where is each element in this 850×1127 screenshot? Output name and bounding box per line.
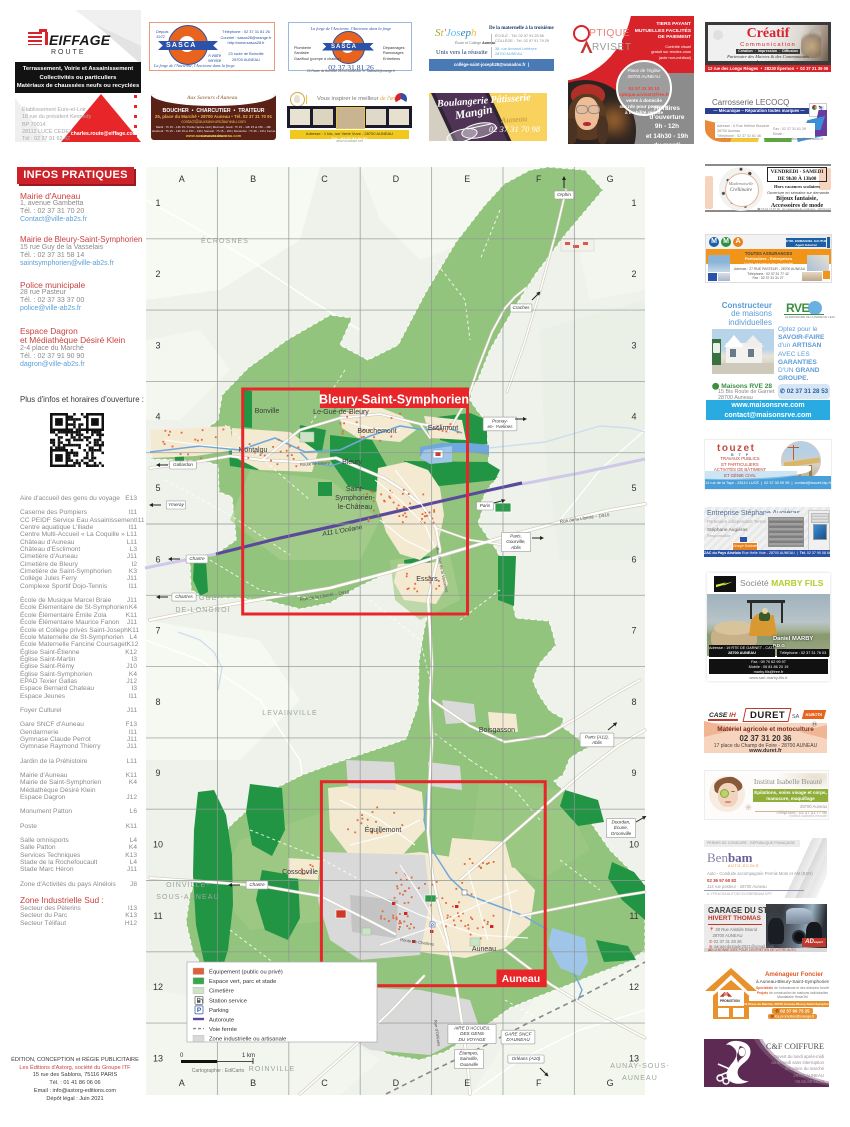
svg-text:G: G — [607, 174, 614, 184]
svg-text:Essars: Essars — [416, 576, 438, 583]
svg-text:Bleury: Bleury — [342, 459, 362, 466]
svg-text:5: 5 — [631, 483, 636, 493]
svg-text:7: 7 — [155, 626, 160, 636]
svg-text:P: P — [197, 1007, 202, 1014]
svg-text:1: 1 — [155, 198, 160, 208]
svg-text:2: 2 — [155, 269, 160, 279]
svg-text:10: 10 — [629, 840, 639, 850]
svg-text:11: 11 — [629, 911, 638, 921]
svg-text:D'AUNEAU: D'AUNEAU — [506, 1037, 530, 1042]
svg-text:8: 8 — [155, 697, 160, 707]
svg-text:Chartre: Chartre — [189, 556, 205, 561]
svg-text:DES GENS: DES GENS — [460, 1031, 485, 1036]
svg-text:4: 4 — [155, 412, 160, 422]
svg-text:12: 12 — [153, 982, 163, 992]
svg-text:Bouchemont: Bouchemont — [357, 428, 396, 435]
svg-text:Ouarville: Ouarville — [460, 1062, 479, 1067]
svg-text:ROINVILLE: ROINVILLE — [249, 1066, 295, 1073]
svg-text:AIRE D'ACCUEIL: AIRE D'ACCUEIL — [453, 1026, 491, 1031]
svg-text:Parking: Parking — [209, 1008, 229, 1014]
svg-text:Cossonville: Cossonville — [282, 869, 318, 876]
svg-text:12: 12 — [629, 982, 639, 992]
svg-text:Voie ferrée: Voie ferrée — [209, 1027, 237, 1033]
svg-text:LEVAINVILLE: LEVAINVILLE — [262, 710, 318, 717]
svg-text:Bonville: Bonville — [255, 408, 280, 415]
svg-text:le-Château: le-Château — [338, 504, 372, 511]
svg-text:Autoroute: Autoroute — [209, 1018, 234, 1024]
svg-text:1: 1 — [631, 198, 636, 208]
svg-text:Orléans (A10): Orléans (A10) — [512, 1056, 541, 1061]
svg-text:A: A — [179, 174, 185, 184]
svg-text:Le-Gué-de-Bleury: Le-Gué-de-Bleury — [313, 409, 369, 416]
svg-text:3: 3 — [631, 340, 636, 350]
svg-text:DE-LONGROI: DE-LONGROI — [175, 607, 230, 614]
svg-text:F: F — [536, 174, 542, 184]
svg-text:F: F — [536, 1078, 542, 1088]
svg-text:Craches: Craches — [512, 305, 530, 310]
svg-text:Esclimont: Esclimont — [428, 425, 458, 432]
svg-text:SOUS-AUNEAU: SOUS-AUNEAU — [156, 894, 219, 901]
svg-text:Symphorien-: Symphorien- — [335, 495, 375, 502]
svg-text:Paris,: Paris, — [510, 534, 522, 539]
svg-text:Chartres: Chartres — [175, 594, 193, 599]
svg-text:Espace vert, parc et stade: Espace vert, parc et stade — [209, 979, 276, 985]
svg-text:9: 9 — [631, 768, 636, 778]
svg-text:Équillemont: Équillemont — [365, 825, 402, 834]
svg-text:Chartre: Chartre — [249, 882, 265, 887]
svg-text:3: 3 — [155, 340, 160, 350]
svg-text:10: 10 — [153, 840, 163, 850]
svg-text:Orsonville: Orsonville — [611, 831, 632, 836]
svg-text:7: 7 — [631, 626, 636, 636]
svg-text:11: 11 — [153, 911, 162, 921]
svg-text:Ablis: Ablis — [510, 545, 522, 550]
svg-text:E: E — [464, 174, 470, 184]
svg-text:Dourdan,: Dourdan, — [612, 820, 631, 825]
svg-text:B: B — [250, 174, 256, 184]
svg-text:B: B — [250, 1078, 256, 1088]
svg-text:Équipement (public ou privé): Équipement (public ou privé) — [209, 969, 283, 976]
svg-text:AUNAY-SOUS-: AUNAY-SOUS- — [610, 1063, 670, 1070]
svg-text:AUNEAU: AUNEAU — [622, 1075, 658, 1082]
svg-text:OINVILLE-: OINVILLE- — [166, 882, 210, 889]
svg-text:Ymeray: Ymeray — [168, 502, 185, 507]
svg-text:Bleury-Saint-Symphorien: Bleury-Saint-Symphorien — [319, 393, 469, 407]
svg-text:Auneau: Auneau — [502, 973, 541, 985]
svg-text:13: 13 — [629, 1053, 639, 1063]
svg-text:2: 2 — [631, 269, 636, 279]
svg-text:en- Yvelines: en- Yvelines — [487, 424, 513, 429]
svg-text:Gallardon: Gallardon — [173, 462, 193, 467]
svg-text:C: C — [321, 174, 328, 184]
svg-text:Étampes,: Étampes, — [459, 1050, 478, 1056]
svg-text:Paris: Paris — [480, 503, 491, 508]
svg-text:D: D — [393, 174, 400, 184]
svg-text:P: P — [431, 922, 434, 927]
svg-text:13: 13 — [153, 1053, 163, 1063]
svg-text:Auneau: Auneau — [472, 946, 496, 953]
svg-text:C: C — [321, 1078, 328, 1088]
svg-text:Orphin: Orphin — [557, 192, 571, 197]
svg-text:Gourville,: Gourville, — [506, 539, 525, 544]
svg-text:5: 5 — [155, 483, 160, 493]
svg-text:ÉCROSNES: ÉCROSNES — [201, 236, 249, 245]
svg-text:Prunay-: Prunay- — [492, 418, 509, 423]
svg-text:Cartographie : EdiCarto: Cartographie : EdiCarto — [192, 1068, 245, 1074]
svg-text:Saint-: Saint- — [346, 486, 365, 493]
svg-text:DU VOYAGE: DU VOYAGE — [458, 1037, 486, 1042]
svg-text:G: G — [607, 1078, 614, 1088]
svg-text:Sainville,: Sainville, — [460, 1056, 478, 1061]
svg-text:Cimetière: Cimetière — [209, 989, 234, 995]
svg-text:Station service: Station service — [209, 998, 247, 1004]
svg-text:D: D — [393, 1078, 400, 1088]
svg-text:GARE SNCF: GARE SNCF — [505, 1031, 533, 1036]
svg-text:8: 8 — [631, 697, 636, 707]
svg-text:9: 9 — [155, 768, 160, 778]
svg-text:Ablis: Ablis — [591, 740, 603, 745]
svg-text:Écurie,: Écurie, — [614, 824, 628, 830]
svg-text:6: 6 — [631, 554, 636, 564]
svg-text:4: 4 — [631, 412, 636, 422]
svg-text:6: 6 — [155, 554, 160, 564]
svg-text:A: A — [179, 1078, 185, 1088]
svg-text:Paris (A11),: Paris (A11), — [585, 734, 609, 739]
svg-text:Zone industrielle ou artisanal: Zone industrielle ou artisanale — [209, 1037, 286, 1043]
svg-text:E: E — [464, 1078, 470, 1088]
svg-text:Boisgasson: Boisgasson — [479, 727, 515, 734]
